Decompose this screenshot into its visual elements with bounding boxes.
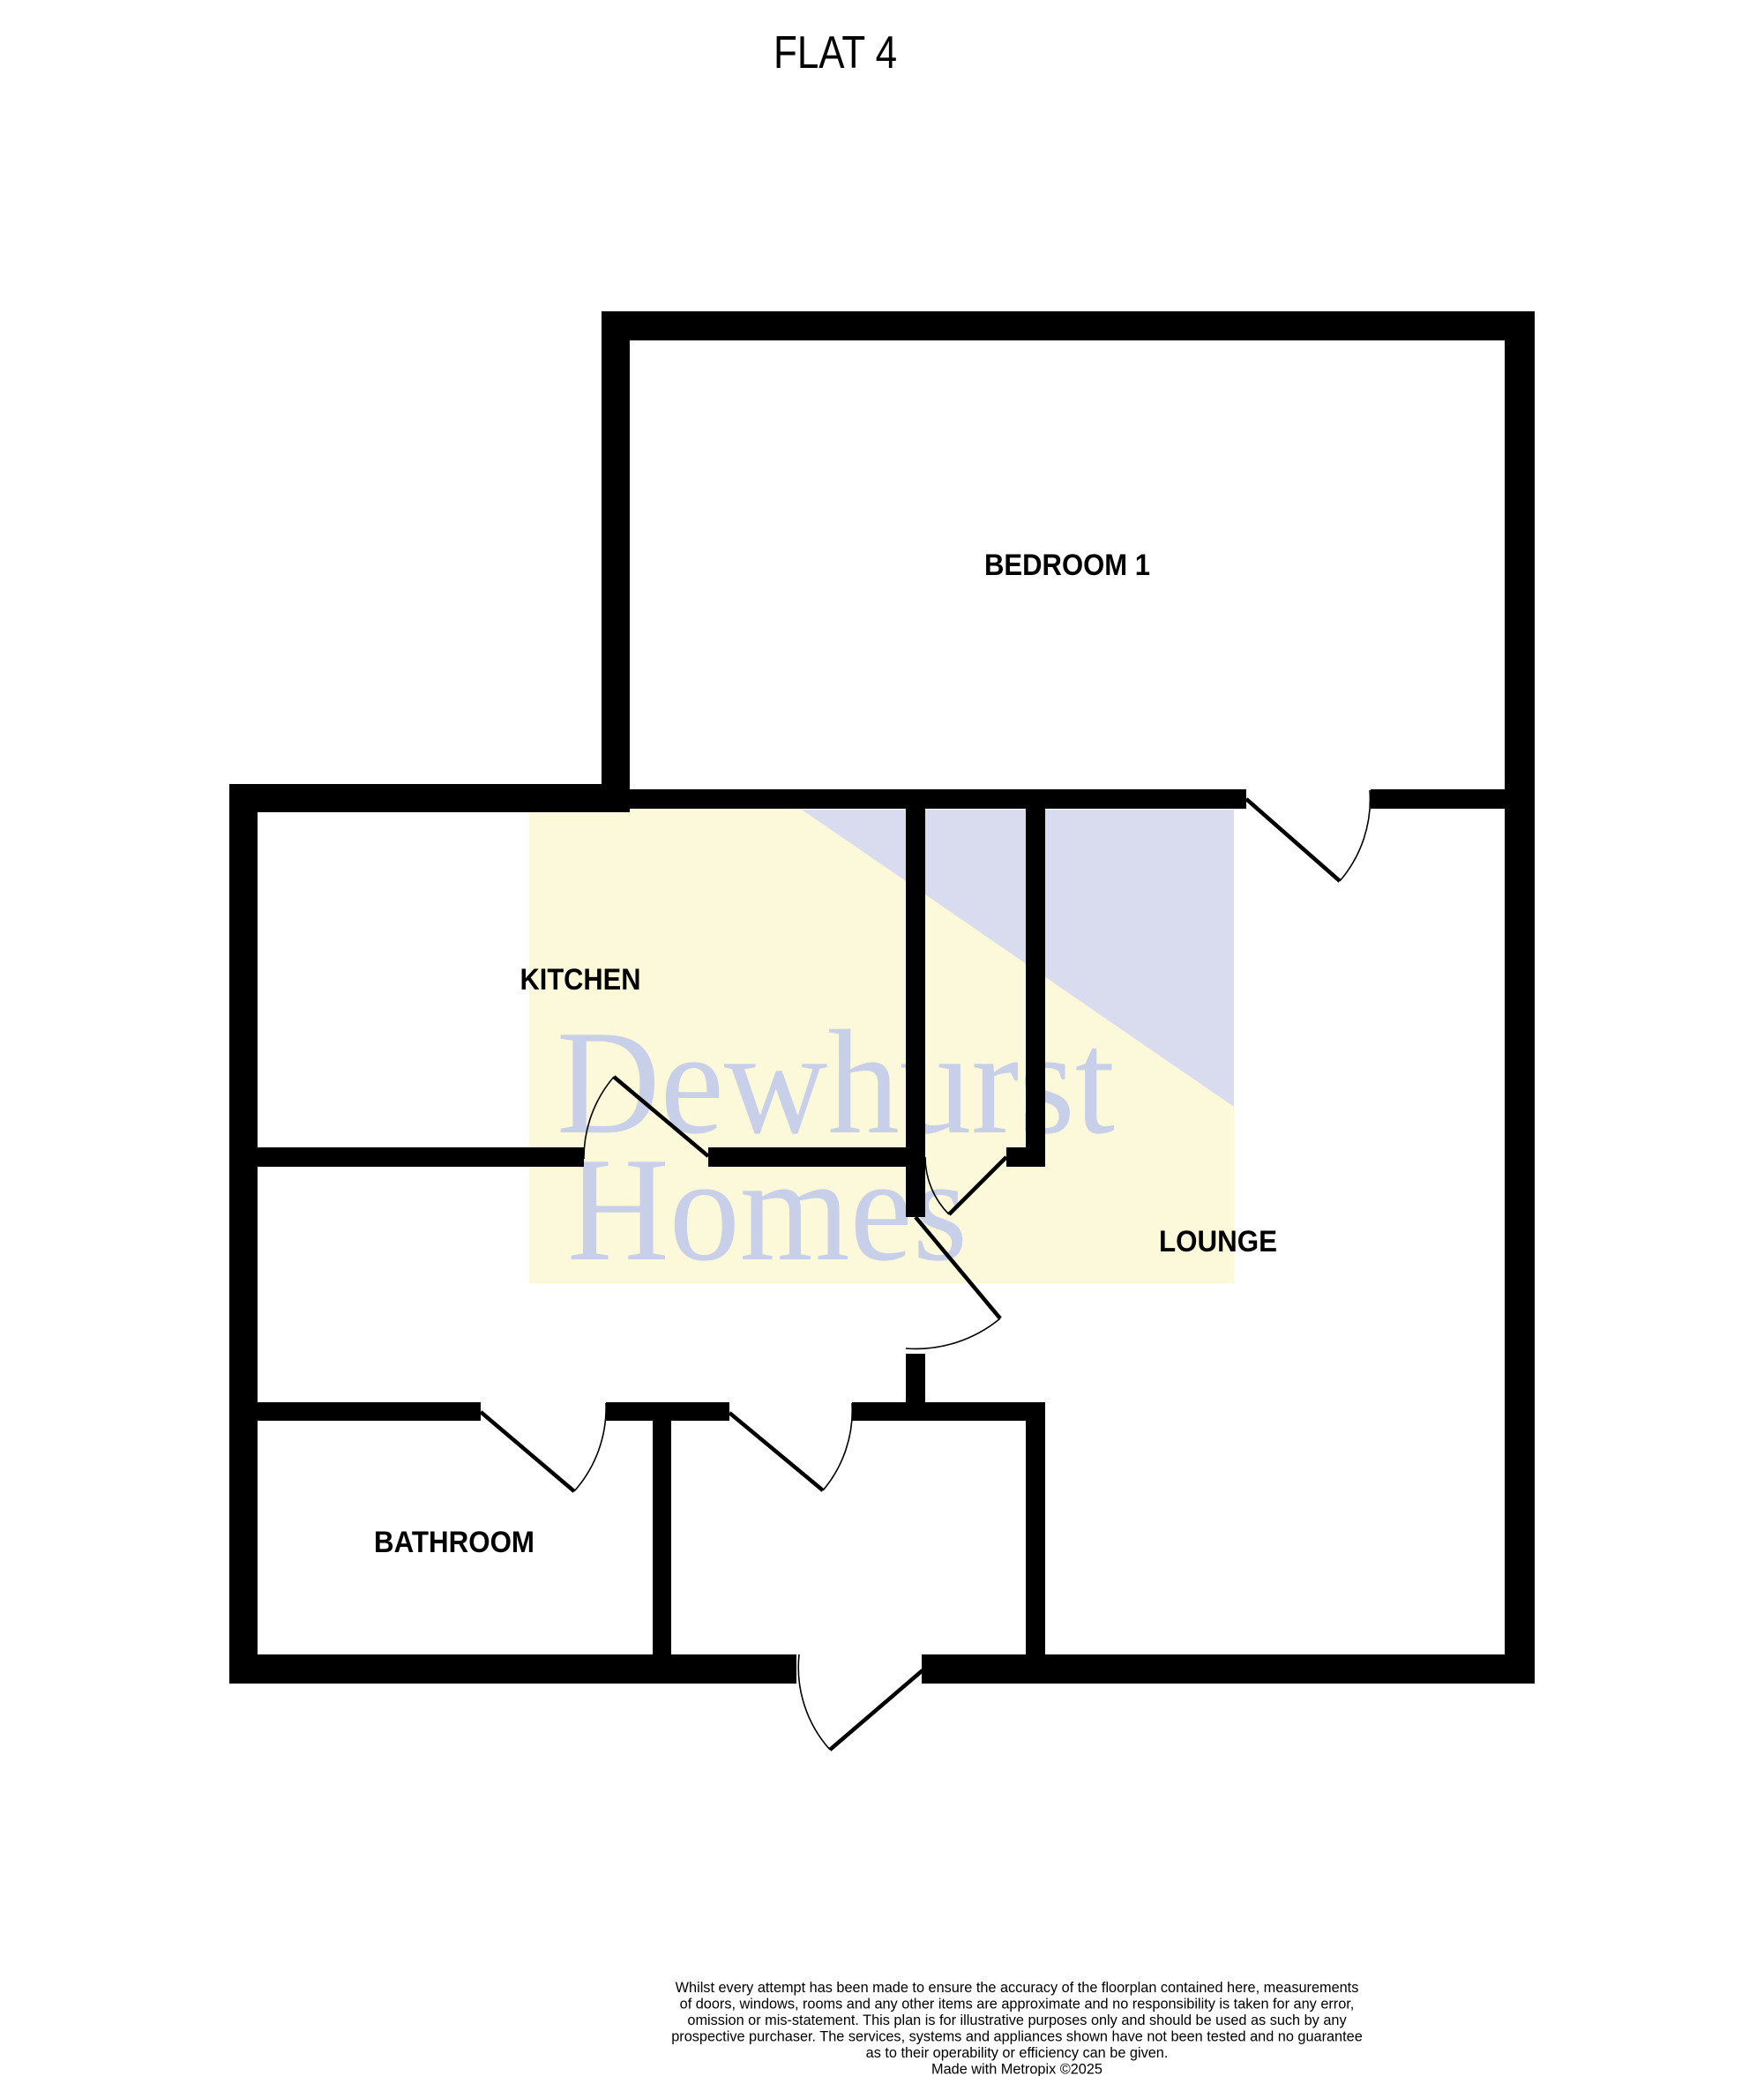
svg-text:LOUNGE: LOUNGE [1159, 1225, 1277, 1258]
svg-text:prospective purchaser. The ser: prospective purchaser. The services, sys… [671, 2029, 1363, 2045]
svg-text:of doors, windows, rooms and a: of doors, windows, rooms and any other i… [680, 1997, 1355, 2013]
svg-text:KITCHEN: KITCHEN [520, 963, 641, 997]
svg-text:Made with Metropix ©2025: Made with Metropix ©2025 [931, 2062, 1102, 2076]
svg-text:BATHROOM: BATHROOM [374, 1526, 534, 1559]
svg-text:Whilst every attempt has been: Whilst every attempt has been made to en… [676, 1980, 1359, 1996]
svg-text:FLAT 4: FLAT 4 [774, 27, 897, 78]
svg-text:BEDROOM 1: BEDROOM 1 [984, 549, 1150, 582]
svg-text:as to their operability or eff: as to their operability or efficiency ca… [866, 2045, 1169, 2061]
svg-text:omission or mis-statement. Thi: omission or mis-statement. This plan is … [687, 2013, 1347, 2028]
